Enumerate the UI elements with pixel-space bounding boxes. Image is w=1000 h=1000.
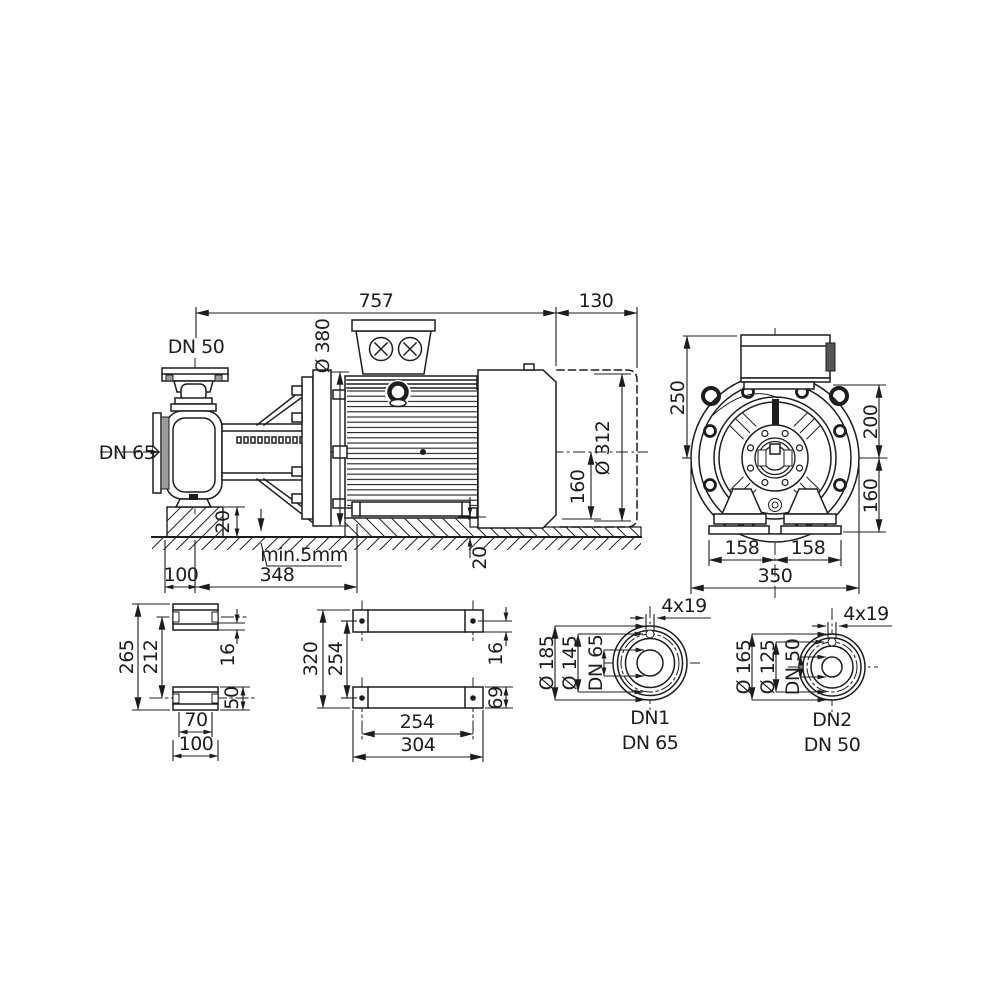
dim-outer-dia: Ø 165 xyxy=(733,640,755,695)
dim-fan-clearance: 130 xyxy=(579,290,614,312)
label-min-gap: min.5mm xyxy=(260,544,347,566)
port-label: DN1 xyxy=(630,707,669,729)
dim-foot-spacing-left: 158 xyxy=(725,537,760,559)
drain-plug xyxy=(189,494,198,500)
motor-foot-view: 320 254 16 69 254 304 xyxy=(300,601,513,762)
dim-outer-dia: Ø 185 xyxy=(536,636,558,691)
flange-dn1-view: Ø 185 Ø 145 DN 65 4x19 DN1 DN 65 xyxy=(536,595,711,754)
dim-plate-thickness: 16 xyxy=(485,642,507,665)
drain-bolt xyxy=(769,499,782,512)
dim-bolt-circle-dia: Ø 125 xyxy=(757,640,779,695)
dim-pad-offset: 100 xyxy=(164,564,199,586)
port-size: DN 65 xyxy=(622,732,679,754)
dim-overall-width: 350 xyxy=(758,565,793,587)
lifting-eye-left xyxy=(703,388,719,404)
dim-terminal-box-height: 200 xyxy=(860,405,882,440)
dim-foot-distance: 348 xyxy=(260,564,295,586)
flange-dn2-view: Ø 165 Ø 125 DN 50 4x19 DN2 DN 50 xyxy=(733,603,892,756)
dim-total-length: 757 xyxy=(359,290,394,312)
dim-pump-pad-height: 20 xyxy=(212,510,234,533)
bolt-hole xyxy=(828,638,836,646)
dim-bolt-holes: 4x19 xyxy=(843,603,889,625)
pump-dimensional-drawing: 757 130 DN 50 Ø 380 DN 65 Ø 312 160 20 m… xyxy=(0,0,1000,1000)
motor-feet-rail xyxy=(352,502,470,516)
motor-body xyxy=(333,320,477,518)
front-view: 250 200 160 158 158 350 xyxy=(667,328,888,600)
terminal-box-front xyxy=(741,335,835,389)
dim-shaft-height-front: 160 xyxy=(860,479,882,514)
port-size: DN 50 xyxy=(804,734,861,756)
side-view: 757 130 DN 50 Ø 380 DN 65 Ø 312 160 20 m… xyxy=(99,290,648,593)
label-suction-flange: DN 65 xyxy=(99,442,156,464)
label-discharge-flange: DN 50 xyxy=(168,336,225,358)
dim-plate-thickness: 16 xyxy=(217,643,239,666)
flange-dn2 xyxy=(799,634,865,700)
pump-casing xyxy=(153,368,228,507)
dim-hole-spacing-depth: 254 xyxy=(325,641,347,676)
dim-bolt-circle-dia: Ø 145 xyxy=(559,636,581,691)
dim-bolt-holes: 4x19 xyxy=(661,595,707,617)
dim-hole-spacing: 212 xyxy=(140,640,162,675)
drawing-canvas: 757 130 DN 50 Ø 380 DN 65 Ø 312 160 20 m… xyxy=(0,0,1000,1000)
dim-hole-spacing-width: 254 xyxy=(400,711,435,733)
dim-motor-pad-height: 20 xyxy=(469,546,491,569)
port-label: DN2 xyxy=(812,709,851,731)
keyway xyxy=(770,444,780,454)
dim-nominal-dia: DN 50 xyxy=(782,639,804,696)
bolt-hole xyxy=(646,630,654,638)
top-rib xyxy=(772,399,779,425)
dim-height-above-center: 250 xyxy=(667,381,689,416)
dim-foot-height: 69 xyxy=(485,686,507,709)
flange-dn1 xyxy=(613,626,687,700)
dim-overall-width: 304 xyxy=(401,734,436,756)
dim-shaft-height-side: 160 xyxy=(567,470,589,505)
dim-slot-spacing: 70 xyxy=(184,709,207,731)
dim-fan-cowl-dia: Ø 312 xyxy=(592,421,614,476)
dim-motor-flange-dia: Ø 380 xyxy=(312,319,334,374)
dim-foot-spacing-right: 158 xyxy=(791,537,826,559)
motor-fins xyxy=(347,390,477,508)
dim-overall-height: 265 xyxy=(116,640,138,675)
dim-overall-depth: 320 xyxy=(300,642,322,677)
dim-nominal-dia: DN 65 xyxy=(585,635,607,692)
pump-foot-view: 265 212 16 50 70 100 xyxy=(116,604,254,761)
motor-front xyxy=(691,335,859,542)
lifting-eye-right xyxy=(831,388,847,404)
shaft-hub xyxy=(742,425,808,491)
dim-foot-width: 100 xyxy=(179,733,214,755)
dim-foot-height: 50 xyxy=(221,686,243,709)
